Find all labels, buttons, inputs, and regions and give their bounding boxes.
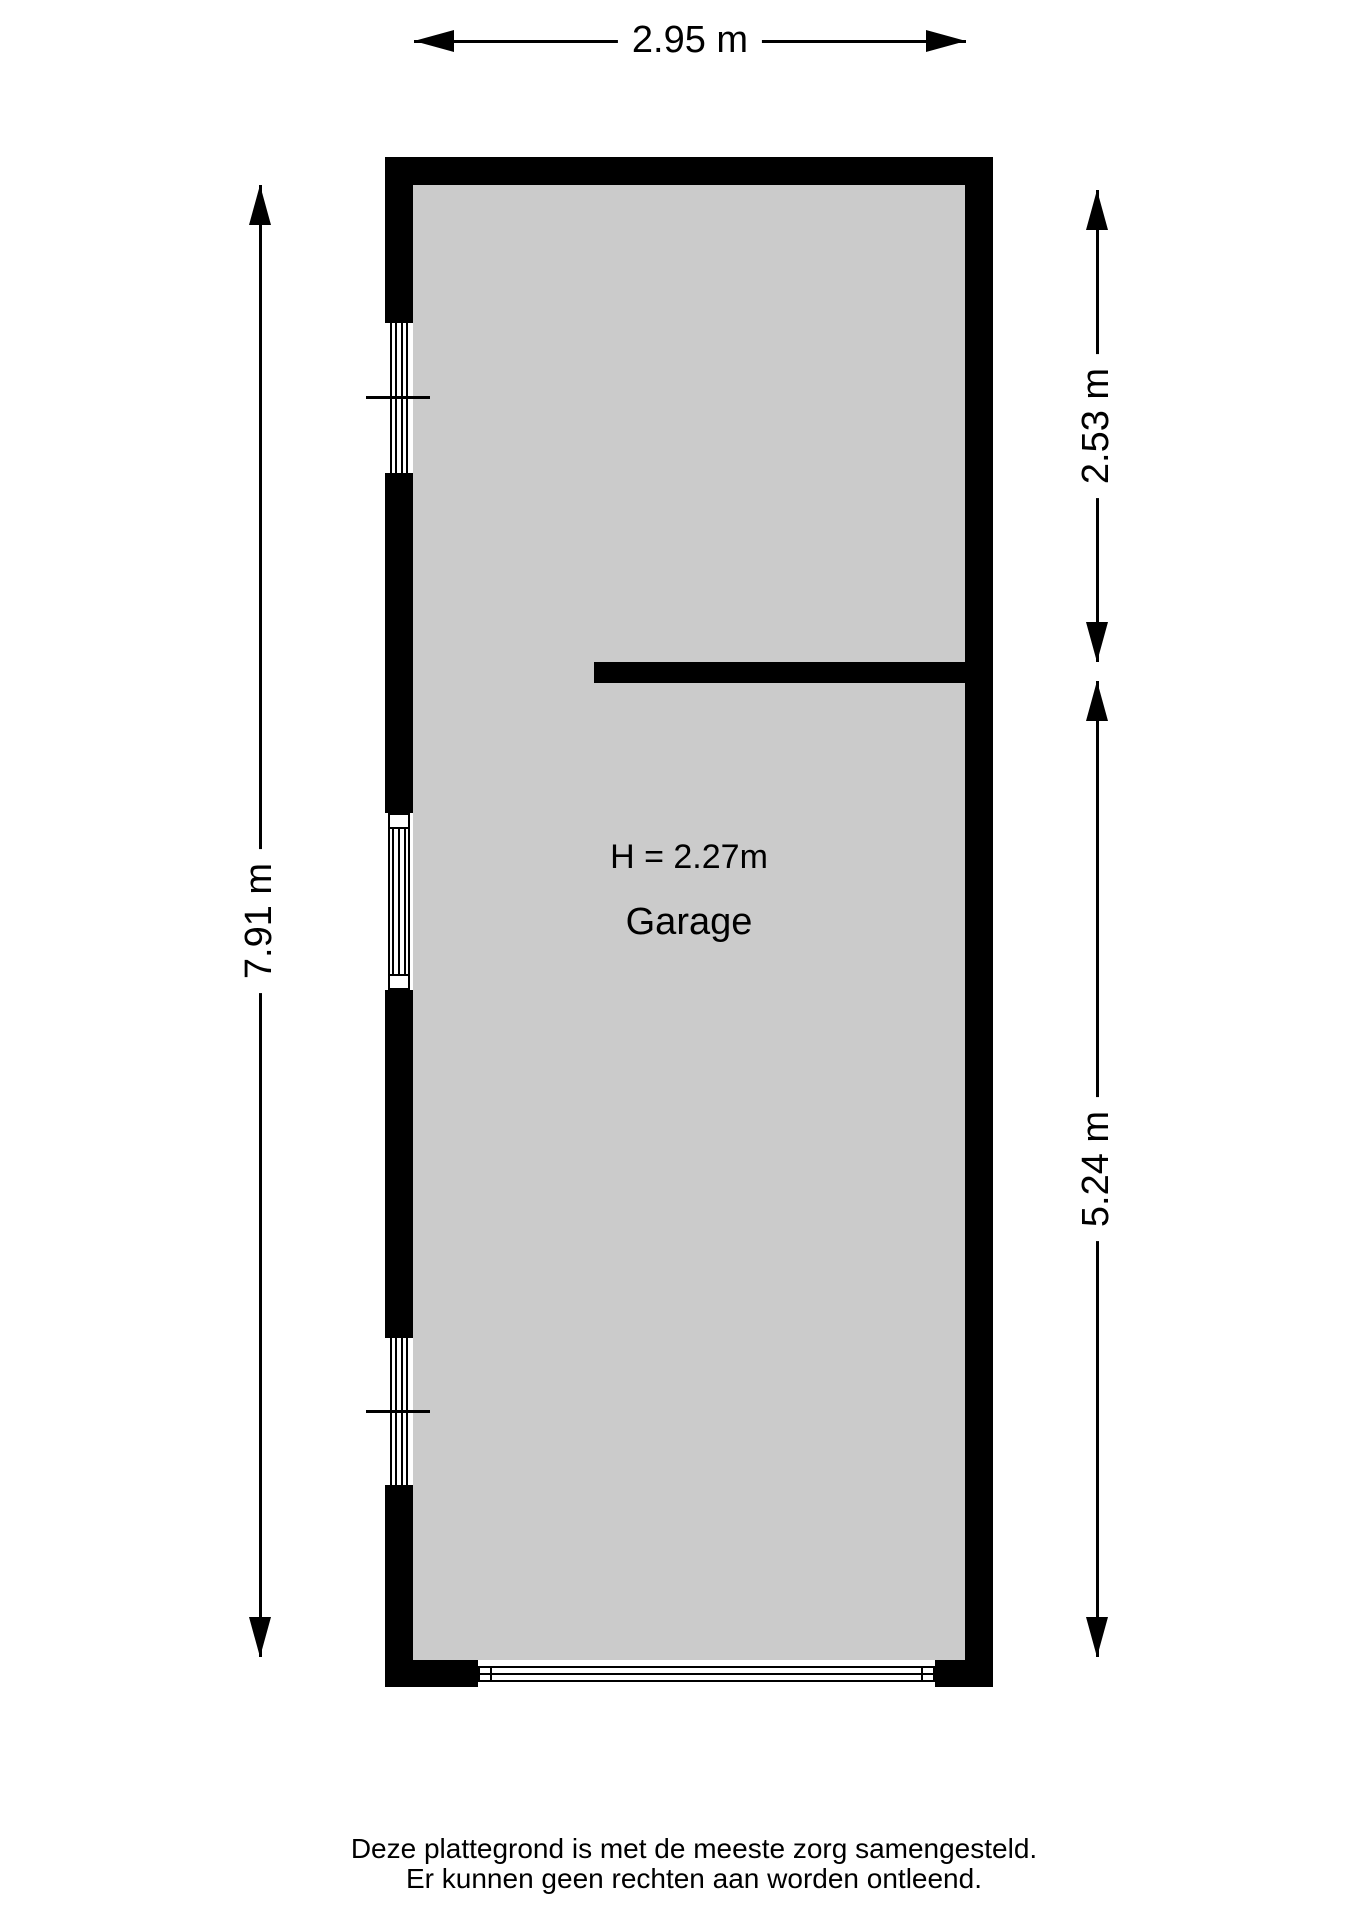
wall-left-segment-4 bbox=[385, 1485, 413, 1687]
window-frame-cap bbox=[390, 974, 408, 976]
arrow-up-icon bbox=[1086, 190, 1108, 230]
arrow-right-icon bbox=[926, 30, 966, 52]
wall-right bbox=[965, 157, 993, 1687]
wall-left-segment-3 bbox=[385, 990, 413, 1338]
disclaimer-line-1: Deze plattegrond is met de meeste zorg s… bbox=[30, 1834, 1358, 1864]
wall-bottom-left-stub bbox=[385, 1660, 478, 1687]
wall-left-segment-1 bbox=[385, 157, 413, 323]
dimension-label-right-lower: 5.24 m bbox=[1076, 1097, 1118, 1241]
disclaimer-line-2: Er kunnen geen rechten aan worden ontlee… bbox=[30, 1864, 1358, 1894]
wall-left-segment-2 bbox=[385, 473, 413, 813]
wall-top bbox=[385, 157, 993, 185]
garage-door-leaf-line bbox=[480, 1673, 933, 1675]
dimension-right-lower: 5.24 m bbox=[1086, 681, 1108, 1657]
dimension-label-left: 7.91 m bbox=[239, 849, 281, 993]
room-height-label: H = 2.27m bbox=[413, 838, 965, 877]
arrow-down-icon bbox=[249, 1617, 271, 1657]
floor-plan-page: 2.95 m 7.91 m 2.53 m 5.24 m bbox=[0, 0, 1358, 1920]
arrow-up-icon bbox=[249, 185, 271, 225]
window-glazing-lines bbox=[392, 829, 406, 974]
divider-wall bbox=[594, 662, 965, 683]
window-middle bbox=[385, 813, 413, 990]
window-top-tick bbox=[366, 396, 430, 399]
arrow-down-icon bbox=[1086, 622, 1108, 662]
garage-door-cap bbox=[490, 1668, 492, 1680]
dimension-top: 2.95 m bbox=[414, 30, 966, 52]
window-frame bbox=[388, 813, 410, 990]
dimension-label-right-upper: 2.53 m bbox=[1076, 354, 1118, 498]
arrow-up-icon bbox=[1086, 681, 1108, 721]
window-bottom-tick bbox=[366, 1410, 430, 1413]
dimension-label-top: 2.95 m bbox=[618, 20, 762, 62]
disclaimer: Deze plattegrond is met de meeste zorg s… bbox=[30, 1834, 1358, 1894]
dimension-right-upper: 2.53 m bbox=[1086, 190, 1108, 662]
room-name-label: Garage bbox=[413, 901, 965, 944]
garage-door-cap bbox=[921, 1668, 923, 1680]
garage-door bbox=[478, 1666, 935, 1682]
dimension-left: 7.91 m bbox=[249, 185, 271, 1657]
wall-bottom-right-stub bbox=[935, 1660, 993, 1687]
arrow-left-icon bbox=[414, 30, 454, 52]
arrow-down-icon bbox=[1086, 1617, 1108, 1657]
